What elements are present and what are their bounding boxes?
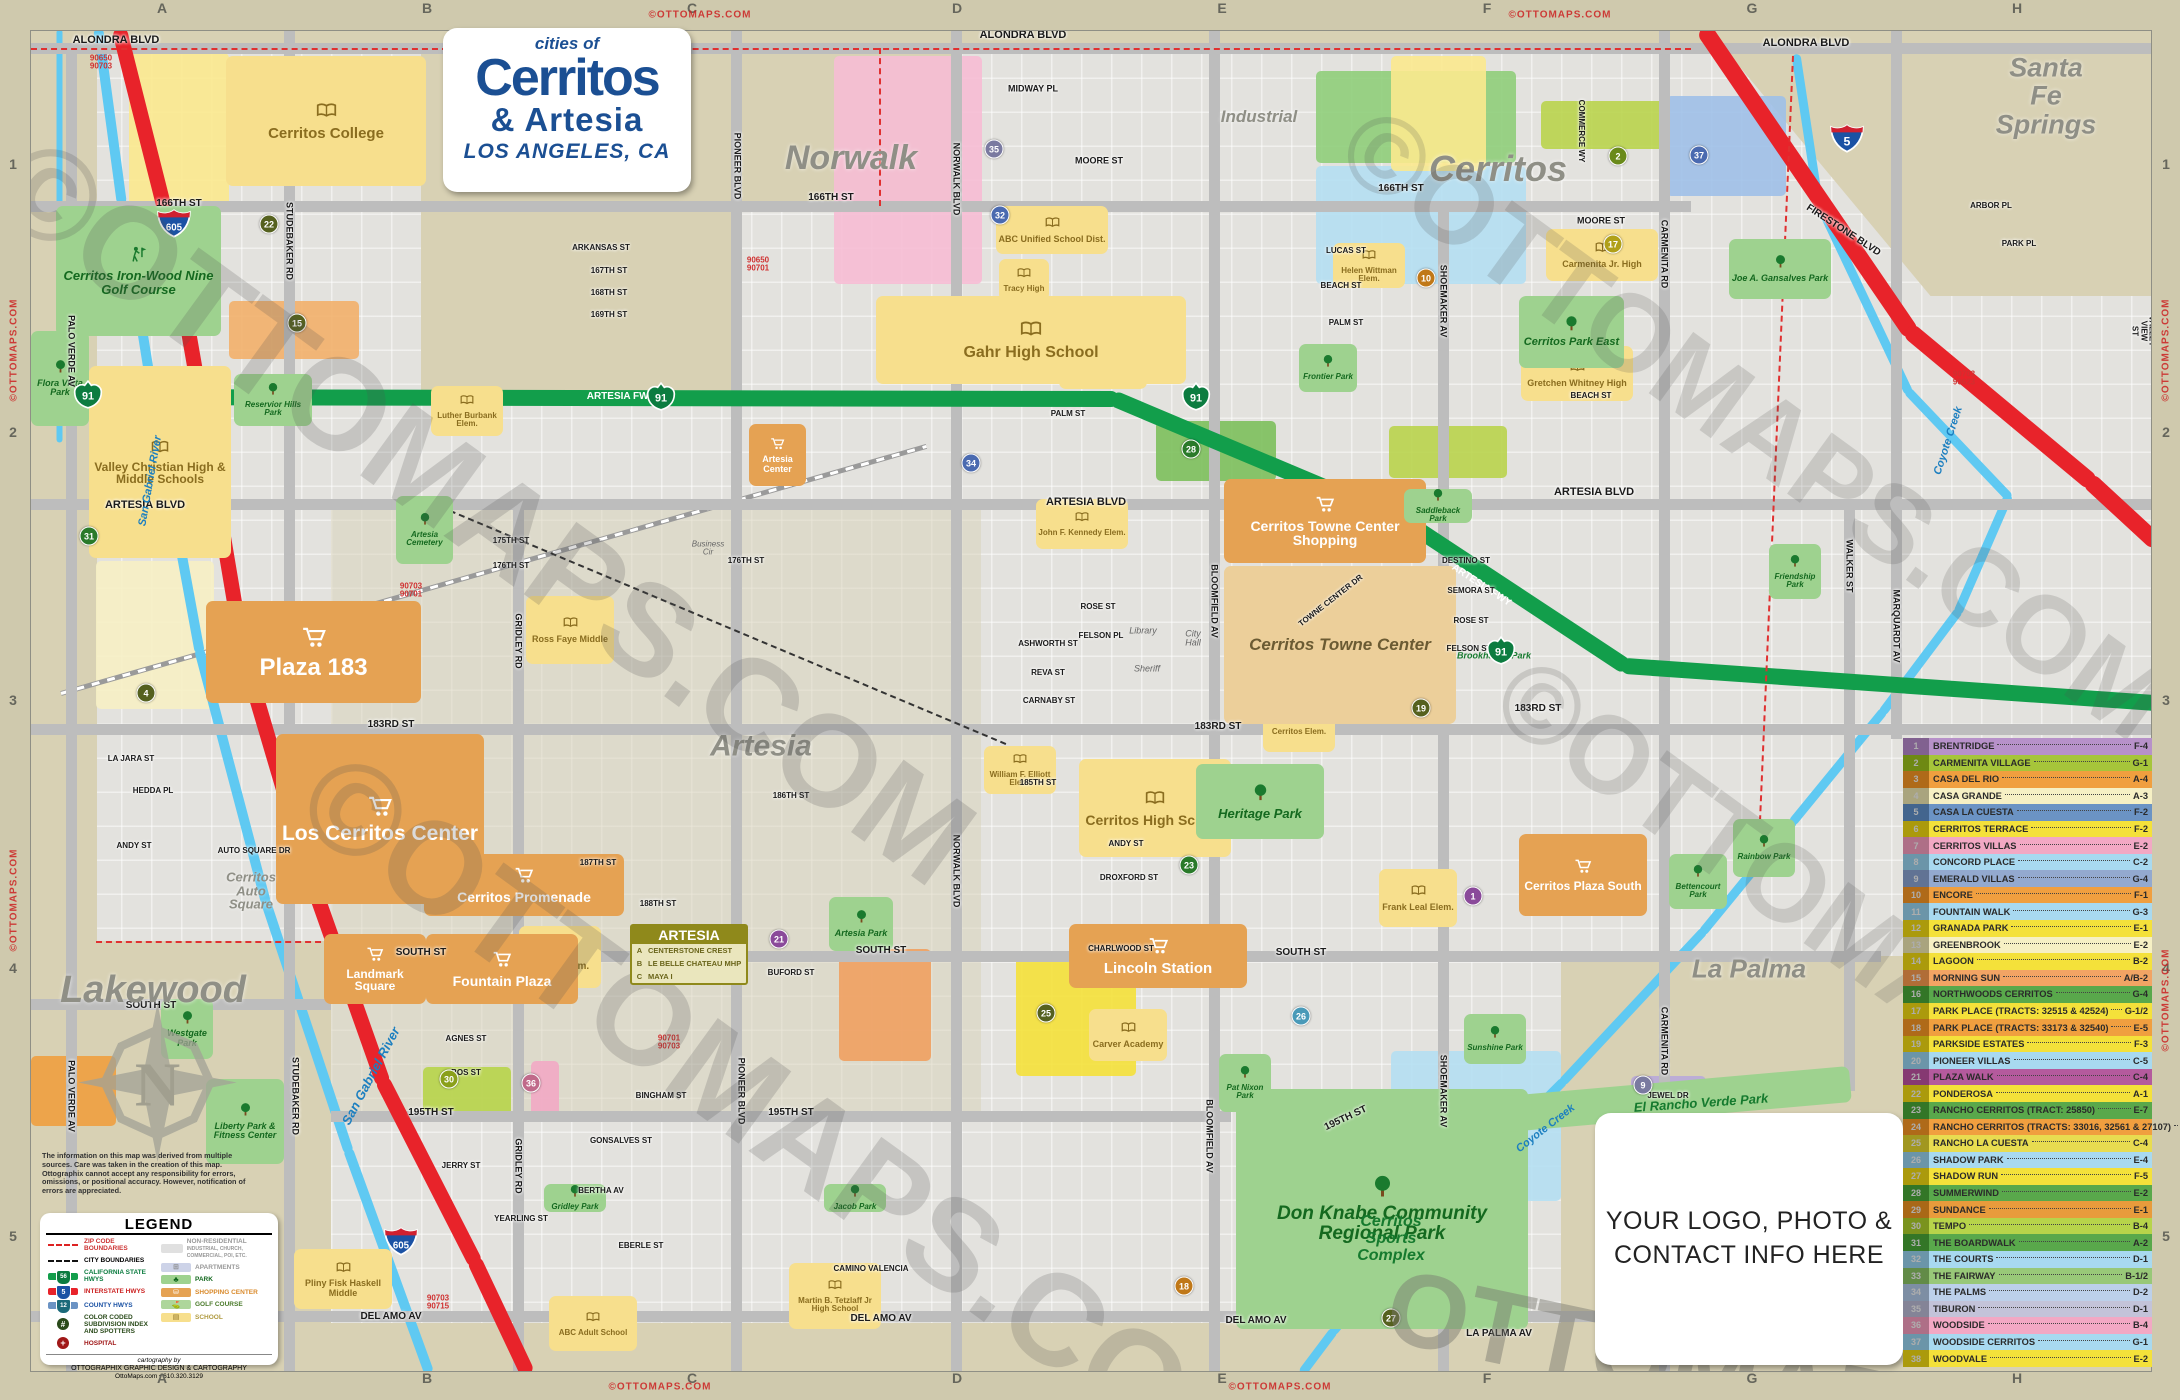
street-label: FELSON PL [1079, 632, 1124, 640]
street-label: CARMENITA RD [1659, 220, 1668, 289]
grid-letter-F: F [1483, 1370, 1492, 1386]
grid-letter-A: A [157, 1370, 167, 1386]
street-label: ASHWORTH ST [1018, 640, 1078, 648]
landmark-park: Cerritos Park East [1519, 296, 1624, 368]
zip-boundary-key [46, 1240, 80, 1250]
grid-number-4: 4 [9, 960, 17, 976]
landmark-label: Cerritos Towne Center [1249, 636, 1431, 654]
golf-swatch: ⛳ [161, 1300, 191, 1309]
area-region [421, 203, 741, 398]
index-row-33: 33THE FAIRWAYB-1/2 [1903, 1268, 2152, 1285]
street-label: ALONDRA BLVD [1763, 38, 1850, 50]
legend-park-label: PARK [195, 1276, 213, 1283]
street-label: BERTHA AV [578, 1187, 623, 1195]
landmark-label: Bettencourt Park [1671, 883, 1725, 900]
index-row-1: 1BRENTRIDGEF-4 [1903, 738, 2152, 755]
spotter-badge-25: 25 [1037, 1004, 1056, 1023]
landmark-label: Gretchen Whitney High [1527, 379, 1627, 388]
title-los-angeles: LOS ANGELES, CA [447, 140, 687, 164]
book-icon [1045, 215, 1060, 235]
street-label: HEDDA PL [133, 787, 174, 795]
street-label: Cerritos [1429, 150, 1567, 188]
landmark-label: Cerritos College [268, 126, 384, 142]
street-label: SOUTH ST [1276, 948, 1327, 959]
book-icon [1017, 266, 1031, 285]
contact-info-placeholder: YOUR LOGO, PHOTO & CONTACT INFO HERE [1595, 1113, 1903, 1365]
street-label: NORWALK BLVD [951, 143, 960, 216]
edge-copyright: ©OTTOMAPS.COM [1229, 1382, 1332, 1393]
street-label: ROSE ST [1080, 603, 1115, 611]
street-label: ANDY ST [1109, 840, 1144, 848]
grid-letter-A: A [157, 0, 167, 16]
landmark-label: Luther Burbank Elem. [433, 412, 501, 429]
street-label: Artesia [710, 730, 812, 762]
index-row-28: 28SUMMERWINDE-2 [1903, 1185, 2152, 1202]
landmark-school: Pliny Fisk Haskell Middle [294, 1249, 392, 1309]
zip-code-label: 90701 90703 [658, 1035, 680, 1052]
landmark-label: John F. Kennedy Elem. [1038, 529, 1125, 537]
street-label: PIONEER BLVD [736, 1058, 745, 1125]
area-region [31, 49, 97, 941]
artesia-inset-item-A: ACENTERSTONE CREST [632, 944, 746, 957]
street-label: CAMINO VALENCIA [834, 1265, 909, 1273]
landmark-park: Saddleback Park [1404, 489, 1472, 523]
subdivision-patch [1541, 101, 1666, 149]
landmark-label: Carver Academy [1093, 1040, 1164, 1049]
tree-icon [1431, 488, 1445, 507]
spotter-badge-37: 37 [1690, 146, 1709, 165]
landmark-label: Rainbow Park [1738, 853, 1791, 861]
street-label: BUFORD ST [768, 969, 815, 977]
street-label: 183RD ST [1515, 704, 1562, 715]
cart-icon [514, 865, 534, 890]
svg-text:N: N [135, 1050, 180, 1120]
road-horizontal [31, 724, 2151, 735]
street-label: La Palma [1692, 955, 1806, 982]
golfer-icon [129, 245, 148, 269]
street-label: 195TH ST [408, 1108, 454, 1119]
landmark-school: Carver Academy [1089, 1009, 1167, 1061]
spotter-badge-18: 18 [1175, 1277, 1194, 1296]
street-label: MOORE ST [1075, 156, 1123, 165]
spotter-badge-27: 27 [1382, 1309, 1401, 1328]
county-hwy-icon: 12 [46, 1300, 80, 1310]
landmark-label: Plaza 183 [259, 655, 367, 680]
edge-copyright: ©OTTOMAPS.COM [9, 299, 20, 402]
street-label: 186TH ST [773, 792, 809, 800]
hospital-icon: + [46, 1338, 80, 1348]
index-row-12: 12GRANADA PARKE-1 [1903, 920, 2152, 937]
index-row-25: 25RANCHO LA CUESTAC-4 [1903, 1135, 2152, 1152]
nonres-swatch [161, 1244, 183, 1253]
edge-copyright: ©OTTOMAPS.COM [2161, 299, 2172, 402]
street-label: BINGHAM ST [636, 1092, 687, 1100]
grid-letter-H: H [2012, 1370, 2022, 1386]
landmark-label: Artesia Cemetery [398, 531, 451, 548]
landmark-park: Joe A. Gansalves Park [1729, 239, 1831, 299]
legend-county-label: COUNTY HWYS [84, 1302, 133, 1309]
street-label: 168TH ST [591, 289, 627, 297]
street-label: Norwalk [785, 141, 917, 177]
zip-boundary [31, 48, 1691, 50]
book-icon [828, 1278, 842, 1297]
street-label: City Hall [1185, 630, 1201, 649]
street-label: LUCAS ST [1326, 247, 1366, 255]
street-label: Cerritos Auto Square [226, 871, 276, 912]
street-label: STUDEBAKER RD [290, 1057, 299, 1135]
landmark-park: Rainbow Park [1733, 819, 1795, 877]
index-row-18: 18PARK PLACE (TRACTS: 33173 & 32540)E-5 [1903, 1019, 2152, 1036]
street-label: WALKER ST [1844, 540, 1853, 593]
index-row-35: 35TIBUROND-1 [1903, 1301, 2152, 1318]
index-row-24: 24RANCHO CERRITOS (TRACTS: 33016, 32561 … [1903, 1119, 2152, 1136]
street-label: BLOOMFIELD AV [1209, 564, 1218, 638]
index-row-9: 9EMERALD VILLASG-4 [1903, 870, 2152, 887]
grid-letter-E: E [1217, 0, 1226, 16]
landmark-school: ABC Adult School [549, 1296, 637, 1351]
zip-code-label: 90650 90701 [747, 257, 769, 274]
street-label: REVA ST [1031, 669, 1065, 677]
street-label: 166TH ST [1378, 184, 1424, 195]
landmark-school: Ross Faye Middle [526, 596, 614, 664]
street-label: 175TH ST [493, 537, 529, 545]
street-label: Industrial [1221, 108, 1298, 126]
tree-icon [1238, 1065, 1252, 1084]
landmark-label: Cerritos Park East [1524, 337, 1619, 349]
book-icon [460, 393, 474, 412]
spotter-badge-1: 1 [1464, 887, 1483, 906]
landmark-shop: Cerritos Plaza South [1519, 834, 1647, 916]
landmark-golf: Cerritos Iron-Wood Nine Golf Course [56, 206, 221, 336]
book-icon [1020, 318, 1042, 345]
landmark-label: Fountain Plaza [453, 974, 552, 989]
svg-text:91: 91 [1190, 393, 1202, 405]
spotter-badge-26: 26 [1292, 1007, 1311, 1026]
street-label: 185TH ST [1020, 779, 1056, 787]
tree-icon [1773, 254, 1788, 274]
spotter-badge-35: 35 [985, 140, 1004, 159]
landmark-park: Jacob Park [824, 1184, 886, 1212]
index-row-3: 3CASA DEL RIOA-4 [1903, 771, 2152, 788]
landmark-label: Tracy High [1004, 285, 1045, 293]
legend-shopping-label: SHOPPING CENTER [195, 1289, 258, 1296]
street-label: SEMORA ST [1447, 587, 1494, 595]
contact-line-1: YOUR LOGO, PHOTO & [1606, 1205, 1892, 1239]
landmark-shop: Fountain Plaza [426, 934, 578, 1004]
subdivision-spotter-icon: # [46, 1319, 80, 1329]
grid-letter-F: F [1483, 0, 1492, 16]
street-label: AGNES ST [446, 1035, 487, 1043]
street-label: ARBOR PL [1970, 202, 2012, 210]
grid-letter-B: B [422, 0, 432, 16]
street-label: 176TH ST [728, 557, 764, 565]
edge-copyright: ©OTTOMAPS.COM [649, 10, 752, 21]
street-label: PARK PL [2002, 240, 2037, 248]
grid-number-3: 3 [2162, 692, 2170, 708]
landmark-park: Bettencourt Park [1669, 854, 1727, 909]
landmark-label: Carmenita Jr. High [1562, 260, 1642, 269]
landmark-label: Reservior Hills Park [236, 401, 310, 418]
zip-code-label: 90650 90703 [90, 55, 112, 72]
landmark-label: Valley Christian High & Middle Schools [91, 461, 229, 486]
legend-city-label: CITY BOUNDARIES [84, 1257, 144, 1264]
index-row-37: 37WOODSIDE CERRITOSG-1 [1903, 1334, 2152, 1351]
book-icon [1075, 510, 1089, 529]
landmark-park: Sunshine Park [1464, 1014, 1526, 1064]
contact-line-2: CONTACT INFO HERE [1614, 1239, 1884, 1273]
tree-icon [1691, 864, 1705, 883]
spotter-badge-17: 17 [1604, 235, 1623, 254]
index-row-21: 21PLAZA WALKC-4 [1903, 1069, 2152, 1086]
cart-icon [366, 945, 384, 968]
title-artesia: & Artesia [447, 103, 687, 136]
cart-icon [492, 949, 512, 974]
landmark-label: Frontier Park [1303, 373, 1353, 381]
zip-code-label: 90703 90701 [400, 583, 422, 600]
landmark-school: Luther Burbank Elem. [431, 386, 503, 436]
grid-number-2: 2 [2162, 424, 2170, 440]
index-row-19: 19PARKSIDE ESTATESF-3 [1903, 1036, 2152, 1053]
street-label: SOUTH ST [396, 948, 447, 959]
grid-number-3: 3 [9, 692, 17, 708]
landmark-label: Landmark Square [326, 968, 424, 993]
landmark-label: Joe A. Gansalves Park [1732, 274, 1828, 283]
edge-copyright: ©OTTOMAPS.COM [1509, 10, 1612, 21]
index-row-11: 11FOUNTAIN WALKG-3 [1903, 903, 2152, 920]
interstate-shield-605: 605 [156, 209, 192, 244]
street-label: AUTO SQUARE DR [218, 847, 291, 855]
street-label: STUDEBAKER RD [284, 202, 293, 280]
street-label: ALONDRA BLVD [73, 35, 160, 47]
index-row-27: 27SHADOW RUNF-5 [1903, 1168, 2152, 1185]
grid-letter-E: E [1217, 1370, 1226, 1386]
legend: LEGEND ZIP CODE BOUNDARIES CITY BOUNDARI… [40, 1213, 278, 1365]
legend-title: LEGEND [46, 1216, 272, 1235]
street-label: ALONDRA BLVD [980, 30, 1067, 42]
index-row-29: 29SUNDANCEE-1 [1903, 1201, 2152, 1218]
spotter-badge-22: 22 [260, 215, 279, 234]
landmark-shop: Landmark Square [324, 934, 426, 1004]
landmark-park: Frontier Park [1299, 344, 1357, 392]
index-row-15: 15MORNING SUNA/B-2 [1903, 970, 2152, 987]
street-label: CHARLWOOD ST [1088, 945, 1154, 953]
street-label: YEARLING ST [494, 1215, 548, 1223]
landmark-park: Heritage Park [1196, 764, 1324, 839]
spotter-badge-32: 32 [991, 206, 1010, 225]
street-label: BEACH ST [1571, 392, 1612, 400]
spotter-badge-4: 4 [137, 684, 156, 703]
cart-icon [1574, 857, 1592, 880]
grid-letter-D: D [952, 0, 962, 16]
street-label: PIONEER BLVD [732, 133, 741, 200]
landmark-school: ABC Unified School Dist. [996, 206, 1108, 254]
street-label: JEWEL DR [1647, 1092, 1688, 1100]
index-row-17: 17PARK PLACE (TRACTS: 32515 & 42524)G-1/… [1903, 1003, 2152, 1020]
tree-icon [1788, 554, 1802, 573]
street-label: ARTESIA BLVD [1554, 487, 1634, 499]
street-label: Library [1129, 626, 1157, 635]
street-label: VALLEY VIEW ST [2130, 316, 2152, 347]
grid-number-5: 5 [2162, 1228, 2170, 1244]
street-label: DEL AMO AV [850, 1314, 911, 1325]
landmark-label: Cerritos Elem. [1272, 728, 1326, 736]
legend-apartments-label: APARTMENTS [195, 1264, 240, 1271]
landmark-park: Pat Nixon Park [1219, 1054, 1271, 1112]
spotter-badge-36: 36 [522, 1074, 541, 1093]
street-label: ANDY ST [117, 842, 152, 850]
landmark-park: Reservior Hills Park [234, 374, 312, 426]
landmark-school: Tracy High [999, 259, 1049, 301]
landmark-park: Artesia Park [829, 897, 893, 951]
interstate-icon: 5 [46, 1287, 80, 1297]
state-route-shield-91: 91 [1181, 382, 1211, 417]
street-label: GRIDLEY RD [513, 613, 522, 668]
street-label: 166TH ST [808, 193, 854, 204]
street-label: PALM ST [1051, 410, 1086, 418]
landmark-label: Cerritos Plaza South [1524, 880, 1641, 893]
street-label: ARTESIA BLVD [1046, 497, 1126, 509]
street-label: GONSALVES ST [590, 1137, 652, 1145]
spotter-badge-28: 28 [1182, 440, 1201, 459]
landmark-label: Pat Nixon Park [1221, 1084, 1269, 1101]
artesia-inset-title: ARTESIA [632, 926, 746, 944]
map-document: Cerritos Iron-Wood Nine Golf CourseFlora… [0, 0, 2180, 1400]
landmark-label: Lincoln Station [1104, 961, 1212, 977]
svg-text:605: 605 [393, 1241, 410, 1252]
school-swatch: ▤ [161, 1313, 191, 1322]
street-label: BLOOMFIELD AV [1204, 1099, 1213, 1173]
landmark-label: Frank Leal Elem. [1382, 903, 1454, 912]
grid-number-2: 2 [9, 424, 17, 440]
street-label: ARKANSAS ST [572, 244, 630, 252]
street-label: ROSE ST [1453, 617, 1488, 625]
apartments-swatch: ⊞ [161, 1263, 191, 1272]
street-label: 176TH ST [493, 562, 529, 570]
grid-letter-B: B [422, 1370, 432, 1386]
landmark-label: ABC Adult School [559, 1329, 628, 1337]
tree-icon [1321, 354, 1335, 373]
book-icon [586, 1310, 600, 1329]
grid-letter-G: G [1747, 1370, 1758, 1386]
street-label: GRIDLEY RD [513, 1138, 522, 1193]
state-hwy-icon: 56 [46, 1271, 80, 1281]
book-icon [1145, 788, 1165, 813]
index-row-4: 4CASA GRANDEA-3 [1903, 788, 2152, 805]
landmark-label: Friendship Park [1771, 573, 1819, 590]
street-label: BEACH ST [1321, 282, 1362, 290]
landmark-label: Artesia Center [751, 455, 804, 474]
landmark-shop: Lincoln Station [1069, 924, 1247, 988]
tree-icon [1251, 783, 1270, 807]
artesia-inset-item-C: CMAYA I [632, 970, 746, 983]
compass-rose: N [75, 1000, 240, 1165]
street-label: ARTESIA FWY [587, 392, 656, 403]
street-label: DESTINO ST [1442, 557, 1490, 565]
street-label: SHOEMAKER AV [1438, 265, 1447, 338]
state-route-shield-91: 91 [1486, 636, 1516, 671]
subdivision-patch [839, 949, 931, 1061]
state-route-shield-91: 91 [73, 380, 103, 415]
landmark-label: Cerritos Promenade [457, 890, 591, 905]
legend-school-label: SCHOOL [195, 1314, 223, 1321]
landmark-label: Artesia Park [835, 929, 888, 938]
zip-boundary [96, 941, 331, 943]
index-row-16: 16NORTHWOODS CERRITOSG-4 [1903, 986, 2152, 1003]
cart-icon [1315, 494, 1335, 519]
zip-boundary [879, 48, 881, 206]
state-route-shield-91: 91 [646, 382, 676, 417]
street-label: LA JARA ST [108, 755, 155, 763]
street-label: 195TH ST [768, 1108, 814, 1119]
index-row-38: 38WOODVALEE-2 [1903, 1350, 2152, 1367]
legend-zip-label: ZIP CODE BOUNDARIES [84, 1238, 157, 1252]
book-icon [1121, 1020, 1136, 1040]
park-swatch: ♣ [161, 1275, 191, 1284]
street-label: DEL AMO AV [360, 1312, 421, 1323]
street-label: SHOEMAKER AV [1438, 1055, 1447, 1128]
tree-icon [1488, 1025, 1502, 1044]
city-boundary-key [46, 1256, 80, 1266]
index-row-30: 30TEMPOB-4 [1903, 1218, 2152, 1235]
legend-hospital-label: HOSPITAL [84, 1340, 116, 1347]
street-label: PALO VERDE AV [66, 315, 75, 387]
tree-icon [1370, 1174, 1395, 1204]
grid-number-1: 1 [2162, 156, 2170, 172]
tree-icon [848, 1184, 862, 1203]
tree-icon [418, 512, 432, 531]
street-label: 187TH ST [580, 859, 616, 867]
cart-icon [367, 793, 393, 824]
landmark-label: Ross Faye Middle [532, 635, 608, 644]
edge-copyright: ©OTTOMAPS.COM [609, 1382, 712, 1393]
street-label: FELSON ST [1447, 645, 1492, 653]
landmark-shop: Plaza 183 [206, 601, 421, 703]
index-row-2: 2CARMENITA VILLAGEG-1 [1903, 755, 2152, 772]
street-label: CARNABY ST [1023, 697, 1075, 705]
index-row-10: 10ENCOREF-1 [1903, 887, 2152, 904]
street-label: PALM ST [1329, 319, 1364, 327]
tree-icon [266, 382, 280, 401]
landmark-park: Artesia Cemetery [396, 496, 453, 564]
street-label: LA PALMA AV [1466, 1329, 1532, 1340]
subdivision-index: 1BRENTRIDGEF-42CARMENITA VILLAGEG-13CASA… [1903, 738, 2152, 1367]
street-label: 183RD ST [368, 720, 415, 731]
interstate-shield-605: 605 [383, 1227, 419, 1262]
book-icon [1013, 752, 1027, 771]
svg-text:91: 91 [1495, 647, 1507, 659]
index-row-32: 32THE COURTSD-1 [1903, 1251, 2152, 1268]
interstate-shield-5: 5 [1829, 124, 1865, 159]
legend-golf-label: GOLF COURSE [195, 1301, 243, 1308]
road-vertical [951, 31, 962, 1371]
index-row-5: 5CASA LA CUESTAF-2 [1903, 804, 2152, 821]
landmark-shop: Artesia Center [749, 424, 806, 486]
road-vertical [731, 31, 742, 1371]
index-row-13: 13GREENBROOKE-2 [1903, 937, 2152, 954]
street-label: 183RD ST [1195, 722, 1242, 733]
street-label: Cerritos Sports Complex [1357, 1214, 1425, 1264]
zip-code-label: 90703 90623 [1953, 371, 1975, 388]
street-label: CARMENITA RD [1659, 1007, 1668, 1076]
street-label: JERRY ST [442, 1162, 481, 1170]
artesia-inset-item-B: BLE BELLE CHATEAU MHP [632, 957, 746, 970]
street-label: MARQUARDT AV [1891, 590, 1900, 663]
tree-icon [1563, 315, 1580, 337]
cart-icon [301, 624, 327, 655]
book-icon [336, 1260, 351, 1280]
index-row-6: 6CERRITOS TERRACEF-2 [1903, 821, 2152, 838]
tree-icon [1757, 834, 1771, 853]
